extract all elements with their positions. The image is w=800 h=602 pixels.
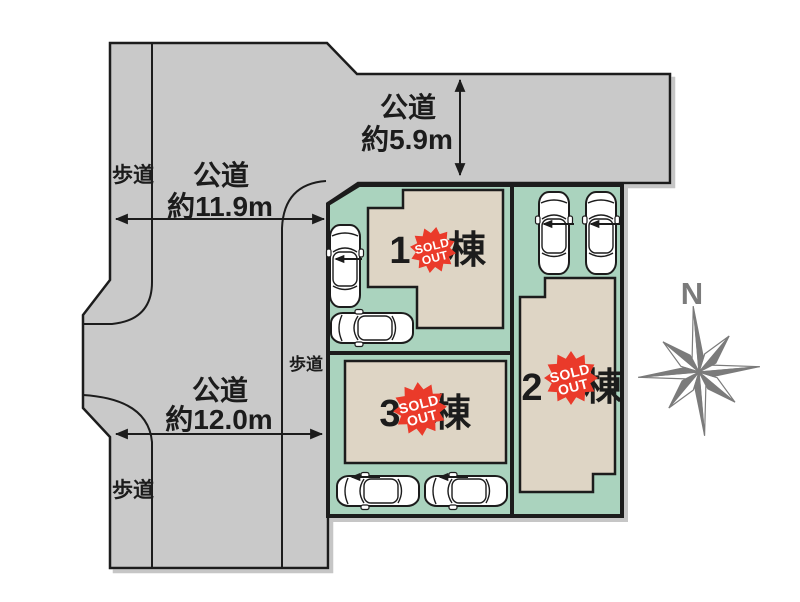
car-icon [583, 192, 620, 274]
compass-rose-icon [632, 301, 765, 441]
west-lower-road-label: 公道 [192, 374, 248, 406]
building-1-number: 1 [389, 230, 410, 272]
top-road-width: 約5.9m [361, 123, 453, 155]
west-upper-road-width: 約11.9m [167, 190, 273, 222]
sidewalk-label-2: 歩道 [289, 354, 323, 374]
site-plan: 公道 約5.9m 公道 約11.9m 公道 約12.0m 歩道 歩道 歩道 1 … [0, 0, 800, 602]
car-icon [337, 473, 419, 510]
car-icon [425, 473, 507, 510]
sidewalk-label-3: 歩道 [112, 478, 154, 502]
top-road-label: 公道 [380, 91, 436, 123]
car-icon [536, 192, 573, 274]
building-2-number: 2 [521, 367, 542, 409]
north-label: N [681, 276, 703, 311]
car-icon [331, 310, 413, 347]
car-icon [327, 225, 364, 307]
west-upper-road-label: 公道 [193, 159, 249, 191]
sidewalk-label-1: 歩道 [112, 163, 154, 187]
building-1-unit: 棟 [448, 230, 487, 272]
building-1-label: 1 棟 SOLD OUT [389, 224, 487, 276]
site-plan-drawing: 公道 約5.9m 公道 約11.9m 公道 約12.0m 歩道 歩道 歩道 1 … [0, 0, 800, 602]
west-lower-road-width: 約12.0m [165, 403, 272, 435]
